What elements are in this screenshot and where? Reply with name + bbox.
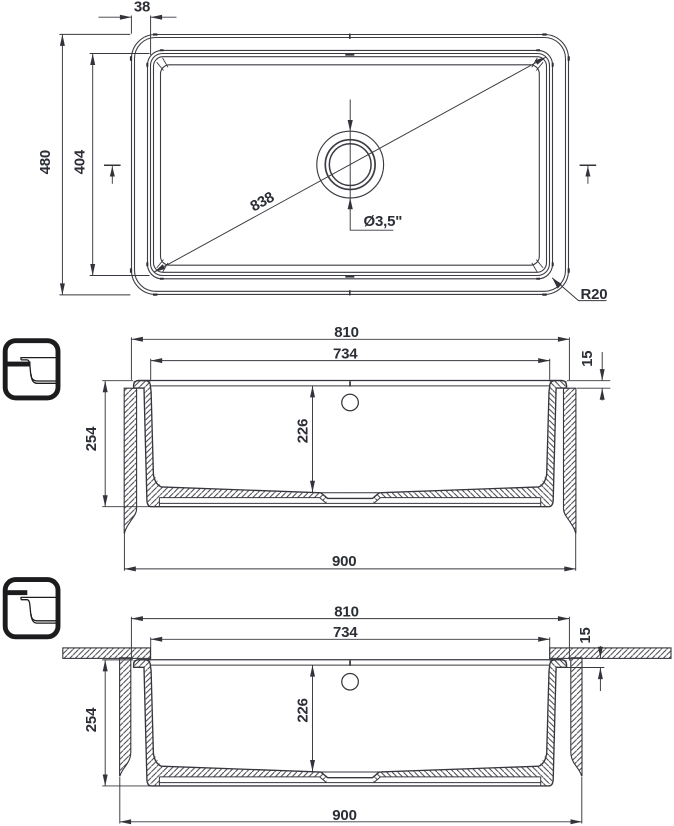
svg-text:15: 15	[579, 351, 596, 367]
svg-text:480: 480	[37, 150, 54, 174]
svg-text:254: 254	[83, 426, 100, 451]
svg-text:810: 810	[334, 324, 358, 341]
svg-text:404: 404	[72, 149, 89, 174]
svg-text:226: 226	[294, 419, 311, 443]
svg-text:226: 226	[294, 698, 311, 722]
svg-text:254: 254	[83, 707, 100, 732]
svg-text:838: 838	[247, 189, 277, 216]
svg-text:900: 900	[332, 807, 356, 824]
svg-text:38: 38	[134, 0, 150, 16]
svg-text:Ø3,5": Ø3,5"	[364, 213, 403, 230]
svg-text:734: 734	[333, 345, 358, 362]
svg-text:R20: R20	[581, 286, 608, 303]
svg-text:734: 734	[333, 624, 358, 641]
svg-text:810: 810	[334, 603, 358, 620]
svg-text:15: 15	[577, 627, 594, 643]
svg-text:900: 900	[332, 553, 356, 570]
